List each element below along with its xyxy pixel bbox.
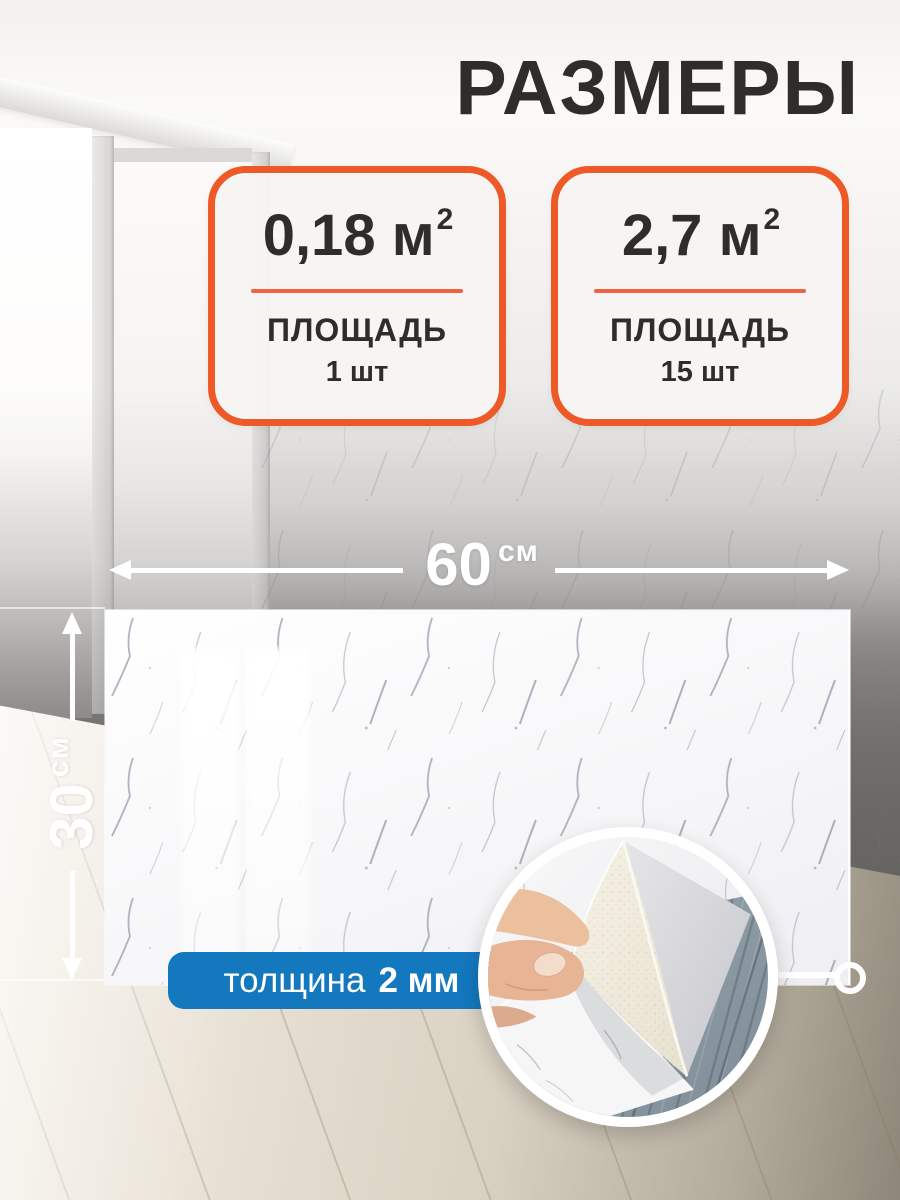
piece-count: 1 шт <box>326 356 389 389</box>
height-label-wrap: 30см <box>46 721 98 871</box>
guide-line-bottom <box>0 979 105 981</box>
height-arrow-line <box>70 634 75 721</box>
panel-gloss-highlight <box>246 648 310 985</box>
area-unit: м <box>392 203 435 268</box>
height-dimension: 30см <box>46 612 98 980</box>
area-card-single: 0,18 м2 ПЛОЩАДЬ 1 шт <box>208 166 506 426</box>
area-value: 2,7 м2 <box>622 207 778 265</box>
thickness-value: 2 мм <box>378 961 459 1001</box>
height-unit: см <box>42 736 75 777</box>
arrow-head-left-icon <box>109 560 131 580</box>
width-value: 60 <box>425 531 492 598</box>
card-divider <box>594 289 806 293</box>
width-arrow-line <box>131 568 403 573</box>
width-label: 60см <box>425 535 533 595</box>
width-arrow-line <box>555 568 827 573</box>
panel-gloss-highlight <box>181 648 239 985</box>
area-label: ПЛОЩАДЬ <box>610 313 790 348</box>
peel-corner-illustration-icon <box>488 837 768 1117</box>
piece-count: 15 шт <box>661 356 740 389</box>
area-number: 0,18 <box>263 203 376 268</box>
width-unit: см <box>498 535 539 568</box>
area-card-pack: 2,7 м2 ПЛОЩАДЬ 15 шт <box>551 166 849 426</box>
height-arrow-line <box>70 871 75 958</box>
page-title: РАЗМЕРЫ <box>455 44 860 133</box>
thickness-label: толщина <box>224 961 366 1001</box>
area-unit-power: 2 <box>437 203 454 236</box>
area-number: 2,7 <box>622 203 703 268</box>
thickness-badge: толщина 2 мм <box>168 952 515 1009</box>
inset-circle <box>478 827 778 1127</box>
card-divider <box>251 289 463 293</box>
area-value: 0,18 м2 <box>263 207 452 265</box>
area-unit-power: 2 <box>763 203 780 236</box>
width-dimension: 60см <box>109 548 849 592</box>
arrow-head-up-icon <box>62 612 82 634</box>
height-value: 30 <box>38 783 105 850</box>
height-label: 30см <box>42 742 102 850</box>
area-unit: м <box>719 203 762 268</box>
arrow-head-down-icon <box>62 958 82 980</box>
callout-ring-icon <box>834 962 866 994</box>
guide-line-top <box>0 607 105 609</box>
area-label: ПЛОЩАДЬ <box>267 313 447 348</box>
arrow-head-right-icon <box>827 560 849 580</box>
product-infographic: РАЗМЕРЫ 0,18 м2 ПЛОЩАДЬ 1 шт 2,7 м2 ПЛОЩ… <box>0 0 900 1200</box>
